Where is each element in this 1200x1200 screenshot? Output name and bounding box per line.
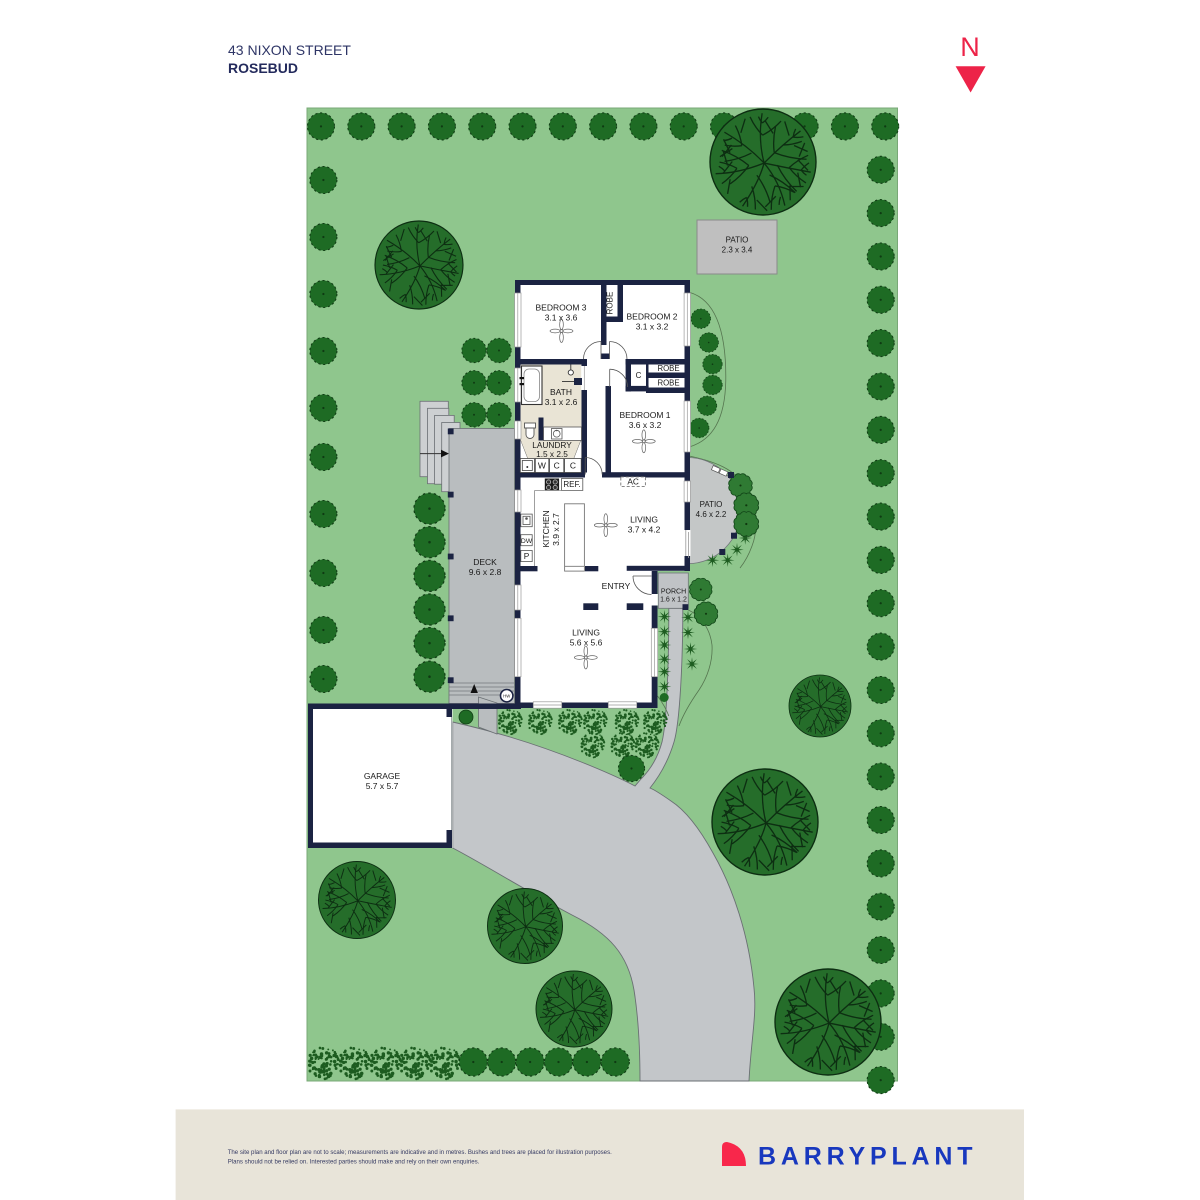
svg-text:P: P [524, 551, 530, 561]
svg-text:5.6 x 5.6: 5.6 x 5.6 [570, 638, 603, 648]
svg-text:5.7 x 5.7: 5.7 x 5.7 [366, 781, 399, 791]
svg-text:1.6 x 1.2: 1.6 x 1.2 [660, 596, 687, 603]
svg-text:ROBE: ROBE [657, 364, 679, 373]
svg-text:AC: AC [627, 476, 639, 486]
svg-text:3.7 x 4.2: 3.7 x 4.2 [628, 525, 661, 535]
svg-text:ROSEBUD: ROSEBUD [228, 60, 298, 76]
svg-text:BEDROOM 3: BEDROOM 3 [535, 303, 586, 313]
svg-text:REF.: REF. [563, 480, 580, 489]
svg-text:Plans should not be relied on.: Plans should not be relied on. Intereste… [228, 1159, 480, 1166]
svg-text:4.6 x 2.2: 4.6 x 2.2 [696, 510, 727, 519]
svg-text:DW: DW [521, 538, 533, 545]
svg-text:PORCH: PORCH [661, 588, 686, 595]
svg-text:ROBE: ROBE [657, 378, 679, 387]
svg-text:ENTRY: ENTRY [602, 581, 631, 591]
svg-text:3.6 x 3.2: 3.6 x 3.2 [629, 420, 662, 430]
svg-text:C: C [636, 371, 642, 380]
svg-text:DECK: DECK [473, 557, 497, 567]
svg-text:1.5 x 2.5: 1.5 x 2.5 [536, 449, 568, 459]
svg-text:ROBE: ROBE [606, 292, 615, 315]
svg-text:2.3 x 3.4: 2.3 x 3.4 [722, 245, 753, 254]
svg-text:BEDROOM 2: BEDROOM 2 [626, 312, 677, 322]
svg-text:PATIO: PATIO [700, 500, 723, 509]
svg-text:GARAGE: GARAGE [364, 771, 401, 781]
svg-text:BATH: BATH [550, 387, 572, 397]
svg-text:PATIO: PATIO [726, 236, 749, 245]
svg-text:3.1 x 3.6: 3.1 x 3.6 [545, 313, 578, 323]
svg-text:KITCHEN: KITCHEN [541, 510, 551, 547]
svg-text:C: C [570, 461, 576, 471]
svg-text:LIVING: LIVING [630, 515, 658, 525]
svg-text:The site plan and floor plan a: The site plan and floor plan are not to … [228, 1149, 612, 1156]
svg-text:9.6 x 2.8: 9.6 x 2.8 [469, 567, 502, 577]
svg-text:HW: HW [503, 693, 511, 698]
svg-text:N: N [960, 32, 980, 62]
svg-text:W: W [538, 461, 546, 471]
svg-text:3.1 x 2.6: 3.1 x 2.6 [545, 397, 578, 407]
svg-text:3.9 x 2.7: 3.9 x 2.7 [551, 513, 561, 546]
svg-text:BEDROOM 1: BEDROOM 1 [619, 410, 670, 420]
svg-text:43 NIXON STREET: 43 NIXON STREET [228, 42, 351, 58]
svg-text:C: C [554, 461, 560, 471]
svg-text:3.1 x 3.2: 3.1 x 3.2 [636, 322, 669, 332]
svg-text:BARRYPLANT: BARRYPLANT [758, 1143, 977, 1171]
svg-text:LIVING: LIVING [572, 628, 600, 638]
